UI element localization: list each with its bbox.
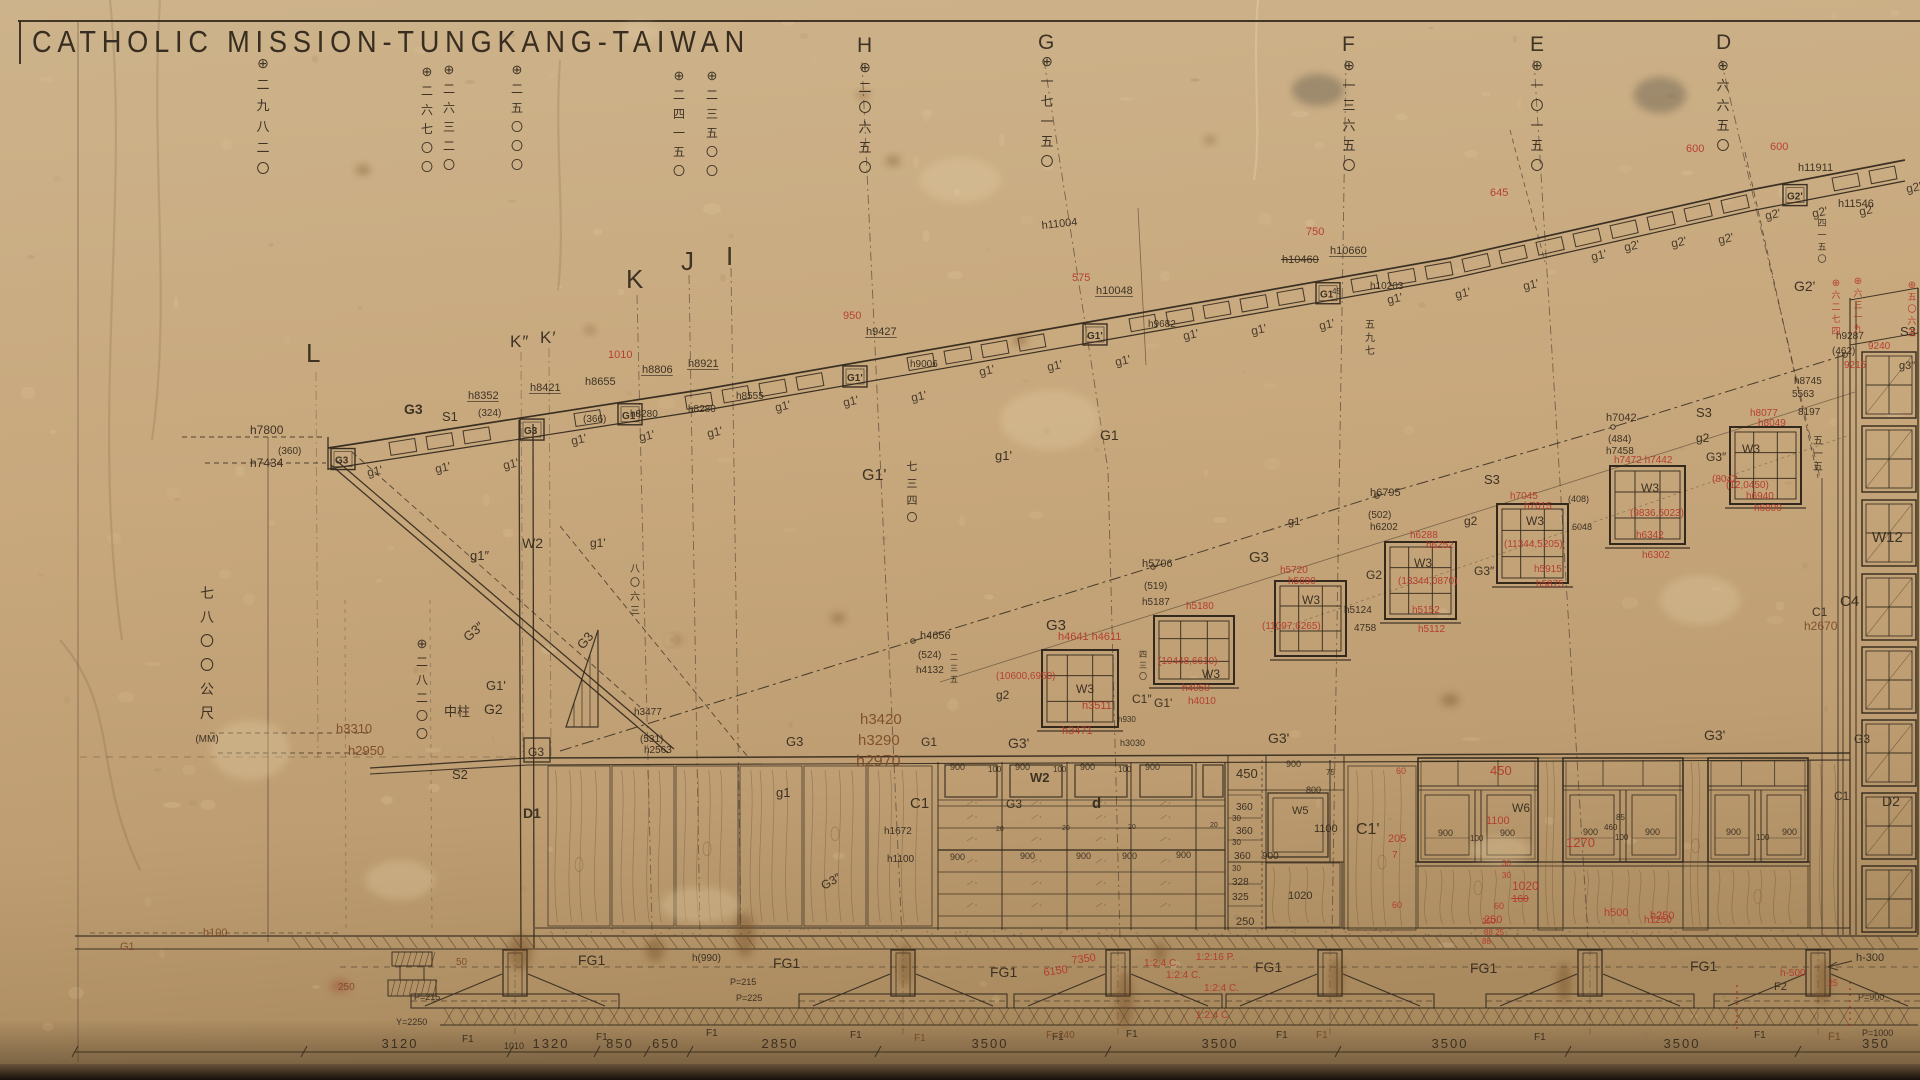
annotation-text: h500 <box>1604 907 1628 919</box>
annotation-text: 〇 <box>1817 254 1826 264</box>
annotation-text: g1 <box>776 785 790 800</box>
annotation-text: 20 <box>1128 824 1136 831</box>
annotation-text: 1020 <box>1288 890 1312 902</box>
annotation-text: h4656 <box>920 630 951 642</box>
annotation-text: 八 <box>200 609 214 625</box>
annotation-text: 三 <box>443 120 455 134</box>
annotation-text: W6 <box>1512 801 1530 815</box>
annotation-text: 三 <box>907 478 918 490</box>
annotation-text: h4641 h4611 <box>1058 631 1121 643</box>
annotation-text: (11344,5205) <box>1504 539 1563 550</box>
annotation-text: 〇 <box>858 100 871 115</box>
annotation-text: 五 <box>1365 320 1375 331</box>
annotation-text: 160 <box>1512 894 1529 905</box>
annotation-text: 六 <box>630 591 640 603</box>
annotation-text: 900 <box>950 852 965 862</box>
annotation-text: 五 <box>1813 462 1823 473</box>
annotation-text: h6800 <box>1754 503 1782 514</box>
annotation-text: h5690 <box>1288 576 1316 587</box>
annotation-text: h5915 <box>1534 564 1562 575</box>
annotation-text: (462) <box>1832 346 1855 357</box>
annotation-text: C1 <box>910 795 929 812</box>
annotation-text: (11097,6265) <box>1262 621 1321 632</box>
annotation-text: 四 <box>1831 326 1840 336</box>
annotation-text: 五 <box>858 140 871 155</box>
annotation-text: W3 <box>1202 667 1220 681</box>
annotation-text: G2' <box>1787 192 1803 203</box>
annotation-text: W3 <box>1076 682 1094 696</box>
annotation-text: h100 <box>203 927 227 939</box>
annotation-text: P=900 <box>1858 992 1884 1002</box>
annotation-text: W3 <box>1302 593 1320 607</box>
annotation-text: 九 <box>1365 332 1375 344</box>
annotation-text: h6342 <box>1636 530 1664 541</box>
annotation-text: h1250 <box>1644 915 1672 926</box>
annotation-text: 100 <box>1470 834 1484 843</box>
annotation-text: 25 <box>1828 978 1838 988</box>
annotation-text: W12 <box>1872 529 1903 546</box>
annotation-text: 七 <box>421 122 433 136</box>
annotation-text: G3 <box>335 456 349 467</box>
annotation-text: ⊕ <box>859 59 871 75</box>
annotation-text: 三 <box>950 664 958 673</box>
annotation-text: P=225 <box>736 993 762 1003</box>
annotation-text: ⊕ <box>1832 278 1840 289</box>
annotation-text: 一 <box>1813 449 1823 460</box>
annotation-text: G1 <box>1100 427 1119 443</box>
annotation-text: 〇 <box>511 158 523 172</box>
annotation-text: 〇 <box>200 633 214 649</box>
annotation-text: 七 <box>907 460 918 473</box>
annotation-text: 900 <box>1262 851 1279 862</box>
annotation-text: FG1 <box>1255 959 1282 975</box>
annotation-text: 〇 <box>416 709 428 723</box>
annotation-text: 九 <box>256 98 269 113</box>
annotation-text: ⊕ <box>1531 57 1543 73</box>
annotation-text: h6940 <box>1746 491 1774 502</box>
annotation-text: ⊕ <box>1854 276 1862 287</box>
annotation-text: h2950 <box>348 743 384 758</box>
annotation-text: 900 <box>950 762 965 772</box>
annotation-text: 8197 <box>1798 407 1821 418</box>
annotation-text: 600 <box>1686 143 1704 155</box>
annotation-text: 六 <box>1831 289 1840 300</box>
annotation-text: 250 <box>338 982 355 993</box>
annotation-text: h8280 <box>630 409 658 420</box>
annotation-text: 三 <box>630 606 640 617</box>
annotation-text: 575 <box>1072 272 1090 284</box>
annotation-text: 250 <box>1236 916 1254 928</box>
annotation-text: h-300 <box>1856 952 1884 964</box>
annotation-text: 30 <box>1232 864 1241 873</box>
annotation-text: 85 <box>1616 813 1625 822</box>
annotation-text: K <box>626 264 644 294</box>
annotation-text: S3 <box>1484 472 1500 487</box>
annotation-text: 900 <box>1726 827 1741 837</box>
annotation-text: (10600,6950) <box>996 671 1056 682</box>
annotation-text: 三 <box>706 107 718 121</box>
annotation-text: g2 <box>996 688 1010 702</box>
annotation-text: 四 <box>673 107 685 121</box>
annotation-text: 1100 <box>1486 815 1510 827</box>
annotation-text: K′ <box>540 328 557 347</box>
annotation-text: G2 <box>484 701 503 717</box>
annotation-text: 〇 <box>706 164 718 178</box>
annotation-text: 一 <box>673 126 685 140</box>
annotation-text: 二 <box>950 653 958 662</box>
annotation-text: F2 <box>1774 981 1787 993</box>
annotation-text: 五 <box>1907 328 1916 338</box>
annotation-text: W3 <box>1414 556 1432 570</box>
paper-edge <box>0 1064 1920 1080</box>
annotation-text: 75 <box>1326 768 1335 777</box>
annotation-text: h8806 <box>642 364 673 376</box>
blueprint-canvas: G3G3G1'G1'G1'G1G2'g1'g1'g1'g1'g1'g1'g1'g… <box>0 0 1920 1080</box>
annotation-text: G3 <box>786 734 803 749</box>
annotation-text: 一 <box>1817 230 1826 240</box>
annotation-text: 二 <box>706 88 718 102</box>
annotation-text: h9006 <box>910 359 938 370</box>
annotation-text: 八 <box>416 673 428 687</box>
annotation-text: h9427 <box>866 326 897 338</box>
annotation-text: 600 <box>1770 141 1788 153</box>
annotation-text: 360 <box>1234 851 1251 862</box>
annotation-text: 二 <box>421 84 433 98</box>
annotation-text: 645 <box>1490 187 1508 199</box>
annotation-text: 1:2:4 C. <box>1166 970 1201 981</box>
annotation-text: 20 <box>1062 825 1070 832</box>
annotation-text: (12,0450) <box>1726 480 1769 491</box>
annotation-text: 六 <box>1342 118 1355 133</box>
annotation-text: ⊕ <box>674 68 685 83</box>
annotation-text: h-500 <box>1780 968 1806 979</box>
annotation-text: h6252 <box>1426 540 1454 551</box>
annotation-text: G1' <box>1154 696 1172 710</box>
annotation-text: W3 <box>1526 514 1544 528</box>
annotation-text: g2 <box>1696 431 1710 445</box>
annotation-text: 〇 <box>421 141 433 155</box>
annotation-text: h7472 h7442 <box>1614 455 1673 466</box>
annotation-text: 中柱 <box>444 704 470 719</box>
annotation-text: 一 <box>1853 312 1862 322</box>
annotation-text: G3 <box>1249 549 1269 566</box>
annotation-text: FG1 <box>773 955 800 971</box>
annotation-text: ⊕ <box>1343 57 1355 73</box>
annotation-text: 六 <box>1716 78 1729 93</box>
annotation-text: D <box>1716 31 1732 54</box>
annotation-text: G3″ <box>1474 564 1495 578</box>
annotation-text: h1100 <box>887 854 915 865</box>
annotation-text: G2 <box>1366 568 1382 582</box>
annotation-text: h3477 <box>634 707 662 718</box>
annotation-text: 五 <box>1342 138 1355 153</box>
annotation-text: h930 <box>1118 715 1136 724</box>
annotation-text: 1010 <box>608 349 632 361</box>
annotation-text: ⊕ <box>1908 280 1916 291</box>
annotation-text: 二 <box>511 82 523 96</box>
annotation-text: 900 <box>1645 827 1660 837</box>
annotation-text: h10660 <box>1330 245 1367 257</box>
annotation-text: h5875 <box>1536 579 1564 590</box>
annotation-text: h5152 <box>1412 605 1440 616</box>
annotation-text: h5706 <box>1142 558 1173 570</box>
annotation-text: 九 <box>1853 324 1862 334</box>
annotation-text: C1″ <box>1132 692 1152 706</box>
annotation-text: 460 <box>1604 823 1618 832</box>
annotation-text: g2 <box>1464 514 1478 528</box>
annotation-text: h5112 <box>1418 624 1446 635</box>
annotation-text: G3' <box>1008 735 1029 751</box>
annotation-text: h4132 <box>916 665 944 676</box>
annotation-text: h(990) <box>692 953 721 964</box>
annotation-text: (408) <box>1568 494 1589 504</box>
annotation-text: G2' <box>1794 278 1815 294</box>
annotation-text: 八 <box>256 119 269 134</box>
annotation-text: 五 <box>1716 118 1729 133</box>
annotation-text: 5563 <box>1792 389 1815 400</box>
annotation-text: h4010 <box>1188 696 1216 707</box>
annotation-text: G1' <box>847 373 863 384</box>
annotation-text: 〇 <box>256 161 269 176</box>
annotation-text: G3' <box>1704 727 1725 743</box>
annotation-text: I <box>726 241 734 271</box>
annotation-text: 1270 <box>1566 835 1595 850</box>
annotation-text: g1 <box>1288 516 1300 528</box>
annotation-text: C4 <box>1840 593 1859 610</box>
annotation-text: 二 <box>1831 302 1840 312</box>
annotation-text: W5 <box>1292 805 1309 817</box>
annotation-text: D2 <box>1882 793 1900 809</box>
annotation-text: 六 <box>1907 315 1916 326</box>
annotation-text: FG1 <box>578 952 605 968</box>
annotation-text: S2 <box>452 767 468 782</box>
annotation-text: 9215 <box>1844 360 1867 371</box>
annotation-text: E <box>1530 33 1545 56</box>
annotation-text: 1:2:16 P. <box>1196 952 1235 963</box>
annotation-text: h3290 <box>858 732 900 749</box>
annotation-text: 1100 <box>1314 823 1338 835</box>
annotation-text: S1 <box>442 409 458 424</box>
annotation-text: G3 <box>1854 732 1870 746</box>
annotation-text: 205 <box>1388 833 1406 845</box>
annotation-text: ⊕ <box>707 68 718 83</box>
annotation-text: 〇 <box>1716 138 1729 153</box>
annotation-text: 900 <box>1176 850 1191 860</box>
annotation-text: 900 <box>1438 828 1453 838</box>
annotation-text: 六 <box>443 101 455 115</box>
annotation-text: (519) <box>1144 581 1167 592</box>
annotation-text: 〇 <box>416 727 428 741</box>
annotation-text: 88 25 <box>1484 928 1505 937</box>
annotation-text: 900 <box>1500 828 1515 838</box>
annotation-text: 1020 <box>1512 879 1539 893</box>
annotation-text: (524) <box>918 650 941 661</box>
annotation-text: 一 <box>1530 78 1543 93</box>
annotation-text: G3 <box>524 426 538 437</box>
annotation-text: G3' <box>1268 730 1289 746</box>
annotation-text: h5124 <box>1344 605 1372 616</box>
annotation-text: 325 <box>1232 892 1249 903</box>
annotation-text: h6202 <box>1370 522 1398 533</box>
annotation-text: 二 <box>443 82 455 96</box>
annotation-text: W2 <box>1030 770 1050 785</box>
annotation-text: h9682 <box>1148 319 1176 330</box>
annotation-text: h5187 <box>1142 597 1170 608</box>
annotation-text: 〇 <box>907 511 918 524</box>
annotation-text: J <box>681 246 695 276</box>
annotation-text: 六 <box>1716 98 1729 113</box>
annotation-text: 二 <box>858 80 871 95</box>
annotation-text: h7434 <box>250 456 284 470</box>
annotation-text: (484) <box>1608 434 1631 445</box>
annotation-text: 三 <box>1853 300 1862 310</box>
annotation-text: h4050 <box>1182 683 1210 694</box>
annotation-text: 二 <box>443 139 455 153</box>
annotation-text: 7 <box>1392 850 1398 861</box>
annotation-text: 〇 <box>1907 304 1916 314</box>
annotation-text: 二 <box>416 691 428 705</box>
annotation-text: 100 <box>1053 765 1067 774</box>
annotation-text: 60 <box>1494 901 1504 911</box>
annotation-text: 〇 <box>1139 672 1147 681</box>
annotation-text: 五 <box>673 145 685 159</box>
annotation-text: 30 <box>1502 859 1511 868</box>
annotation-text: 〇 <box>1342 158 1355 173</box>
annotation-text: 一 <box>1530 118 1543 133</box>
annotation-text: 一 <box>1040 74 1053 89</box>
annotation-text: g1' <box>590 536 606 550</box>
annotation-text: g1' <box>995 448 1012 463</box>
annotation-text: 尺 <box>200 705 214 721</box>
annotation-text: 450 <box>1490 763 1512 778</box>
annotation-text: h3310 <box>336 721 372 736</box>
annotation-text: 〇 <box>1530 158 1543 173</box>
annotation-text: 五 <box>706 126 718 140</box>
annotation-text: 六 <box>421 103 433 117</box>
annotation-text: 五 <box>511 101 523 115</box>
annotation-text: G1' <box>486 678 506 693</box>
annotation-text: h5180 <box>1186 601 1214 612</box>
annotation-text: h7015 <box>1524 501 1552 512</box>
annotation-text: 〇 <box>858 160 871 175</box>
blueprint-photo: { "title": "CATHOLIC MISSION-TUNGKANG-TA… <box>0 0 1920 1080</box>
annotation-text: D1 <box>523 805 541 821</box>
annotation-text: 公 <box>200 681 214 697</box>
annotation-text: h10048 <box>1096 285 1133 297</box>
annotation-text: 五 <box>1813 436 1823 447</box>
annotation-text: 七 <box>1831 314 1840 324</box>
annotation-text: P=215 <box>730 977 756 987</box>
annotation-text: 五 <box>1817 242 1826 252</box>
annotation-text: 〇 <box>443 158 455 172</box>
annotation-text: F <box>1342 33 1356 56</box>
annotation-text: 20 <box>996 826 1004 833</box>
annotation-text: P=215 <box>414 992 440 1002</box>
annotation-text: H <box>857 34 873 57</box>
annotation-text: h3420 <box>860 711 902 728</box>
annotation-text: h3511 <box>1082 700 1112 712</box>
annotation-text: 〇 <box>630 577 640 589</box>
annotation-text: 〇 <box>511 139 523 153</box>
annotation-text: 900 <box>1286 759 1301 769</box>
annotation-text: 50 <box>456 957 468 968</box>
annotation-text: FG1 <box>990 964 1017 980</box>
annotation-text: G1' <box>1087 331 1103 342</box>
annotation-text: 七 <box>1040 94 1053 109</box>
annotation-text: 900 <box>1015 762 1030 772</box>
annotation-text: 450 <box>1236 766 1258 781</box>
annotation-text: h8352 <box>468 390 499 402</box>
annotation-text: 五 <box>1530 138 1543 153</box>
annotation-text: 100 <box>1615 833 1629 842</box>
annotation-text: h1672 <box>884 826 912 837</box>
annotation-text: 〇 <box>673 164 685 178</box>
annotation-text: 328 <box>1232 877 1249 888</box>
annotation-text: 五 <box>1907 292 1916 302</box>
annotation-text: 900 <box>1782 827 1797 837</box>
annotation-text: h8280 <box>688 404 716 415</box>
annotation-text: G3 <box>404 401 423 417</box>
annotation-text: FG1 <box>1690 958 1717 974</box>
annotation-text: 〇 <box>421 160 433 174</box>
annotation-text: 30 <box>1502 871 1511 880</box>
annotation-text: 三 <box>1139 661 1147 670</box>
annotation-text: h7042 <box>1606 412 1637 424</box>
annotation-text: 六 <box>1853 287 1862 298</box>
annotation-text: G3 <box>528 745 544 759</box>
annotation-text: h11911 <box>1798 162 1833 174</box>
annotation-text: 〇 <box>200 657 214 673</box>
annotation-text: 360 <box>1236 802 1253 813</box>
annotation-text: 250 <box>1482 917 1496 926</box>
annotation-text: (324) <box>478 408 501 419</box>
annotation-text: h6795 <box>1370 487 1401 499</box>
annotation-text: d <box>1092 795 1101 812</box>
annotation-text: (13344,0870) <box>1398 576 1458 587</box>
annotation-text: 45 <box>1332 287 1341 296</box>
annotation-text: ⊕ <box>417 636 428 651</box>
annotation-text: ⊕ <box>1717 57 1729 73</box>
annotation-text: ⊕ <box>512 62 523 77</box>
annotation-text: 20 <box>1210 822 1218 829</box>
annotation-text: 五 <box>1040 134 1053 149</box>
annotation-text: h7800 <box>250 423 284 437</box>
annotation-text: 100 <box>1118 765 1132 774</box>
annotation-text: 100 <box>1756 833 1770 842</box>
annotation-text: C1' <box>1356 821 1380 838</box>
annotation-text: G1 <box>921 735 937 749</box>
annotation-text: W2 <box>522 535 543 551</box>
annotation-text: 60 <box>1396 766 1406 776</box>
annotation-text: (10448,6610) <box>1158 656 1218 667</box>
annotation-text: 〇 <box>1530 98 1543 113</box>
annotation-text: 800 <box>1306 785 1321 795</box>
annotation-text: (MM) <box>195 734 218 745</box>
annotation-text: 1:2:4 C. <box>1204 983 1239 994</box>
annotation-text: 360 <box>1236 826 1253 837</box>
annotation-text: 60 <box>1392 900 1402 910</box>
annotation-text: g2' <box>1905 179 1920 196</box>
annotation-text: C1 <box>1834 789 1850 803</box>
annotation-text: 二 <box>416 655 428 669</box>
annotation-text: G3 <box>1006 797 1022 811</box>
annotation-text: G3″ <box>1706 450 1727 464</box>
annotation-text: FG1 <box>1470 960 1497 976</box>
annotation-text: h2970 <box>856 753 901 770</box>
annotation-text: 四 <box>1817 218 1826 228</box>
annotation-text: h5720 <box>1280 565 1308 576</box>
annotation-text: g1″ <box>470 548 489 563</box>
